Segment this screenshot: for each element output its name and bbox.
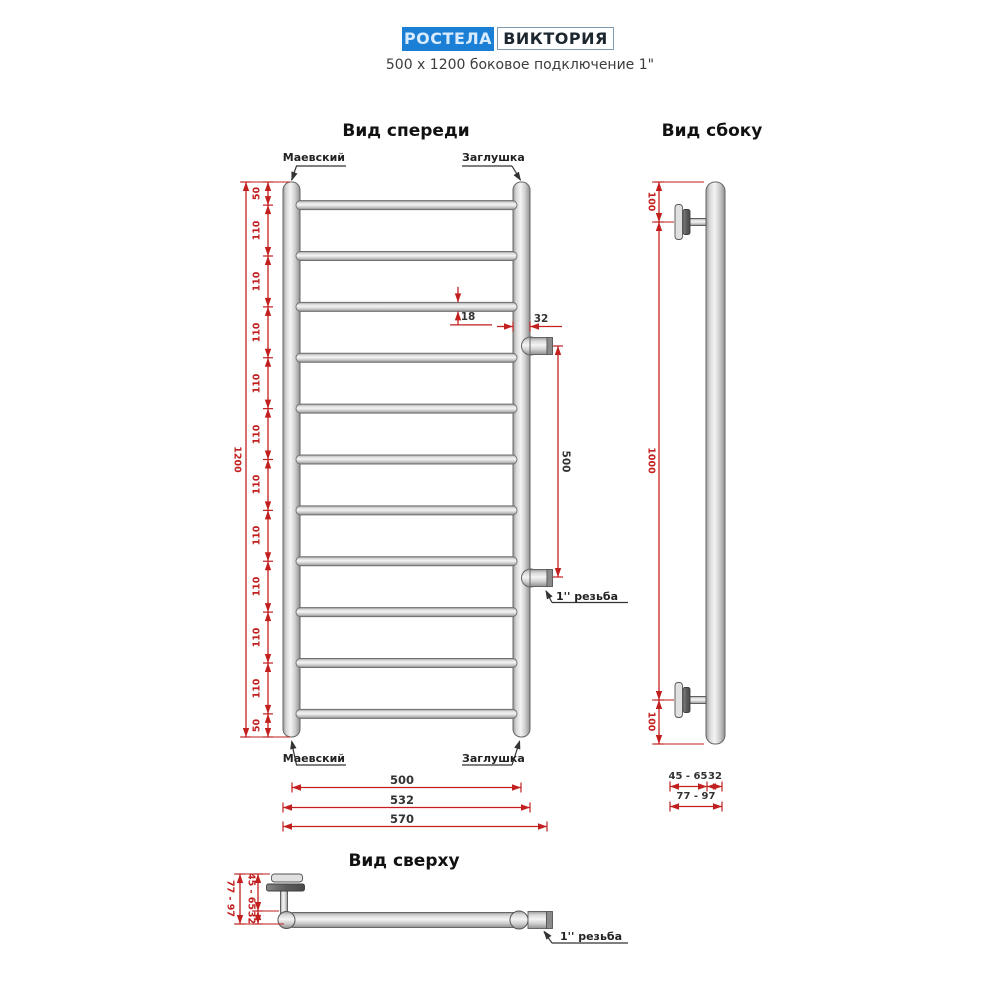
label-zaglushka-bottom: Заглушка	[462, 752, 562, 765]
dim-height-segment: 110	[252, 363, 263, 403]
dim-connection-spacing: 500	[561, 442, 572, 482]
side-view-body	[675, 182, 725, 744]
dim-top-tube: 32	[246, 906, 257, 930]
dim-height-segment: 110	[252, 618, 263, 658]
dim-height-segment: 110	[252, 516, 263, 556]
label-thread-front: 1'' резьба	[556, 590, 646, 603]
technical-drawing-page: РОСТЕЛА ВИКТОРИЯ 500 x 1200 боковое подк…	[0, 0, 1000, 1000]
drawing-linework	[0, 0, 1000, 1000]
dim-total-height: 1200	[232, 440, 243, 480]
dim-height-segment: 50	[252, 174, 263, 214]
dim-height-segment: 110	[252, 211, 263, 251]
label-maevsky-top: Маевский	[245, 151, 345, 164]
dim-side-middle: 1000	[646, 441, 657, 481]
dim-height-segment: 50	[252, 705, 263, 745]
dim-height-segment: 110	[252, 567, 263, 607]
dim-top-total-depth: 77 - 97	[225, 877, 236, 921]
dim-side-tube: 32	[703, 771, 727, 782]
dim-height-segment: 110	[252, 465, 263, 505]
dim-side-total-depth: 77 - 97	[676, 791, 716, 802]
label-maevsky-bottom: Маевский	[245, 752, 345, 765]
front-view-body	[283, 182, 553, 737]
dim-height-segment: 110	[252, 414, 263, 454]
dim-height-segment: 110	[252, 312, 263, 352]
dim-rung-diameter: 18	[456, 311, 480, 323]
dim-side-wall-gap: 45 - 65	[668, 771, 708, 782]
dim-width-532: 532	[382, 793, 422, 807]
dim-collector-diameter: 32	[529, 313, 553, 325]
label-zaglushka-top: Заглушка	[462, 151, 562, 164]
dim-height-segment: 110	[252, 261, 263, 301]
dim-side-bottom-offset: 100	[646, 702, 657, 742]
dim-width-500: 500	[382, 773, 422, 787]
top-view-body	[267, 874, 553, 929]
dim-width-570: 570	[382, 812, 422, 826]
label-thread-top: 1'' резьба	[560, 930, 650, 943]
dim-height-segment: 110	[252, 668, 263, 708]
dim-side-top-offset: 100	[646, 182, 657, 222]
